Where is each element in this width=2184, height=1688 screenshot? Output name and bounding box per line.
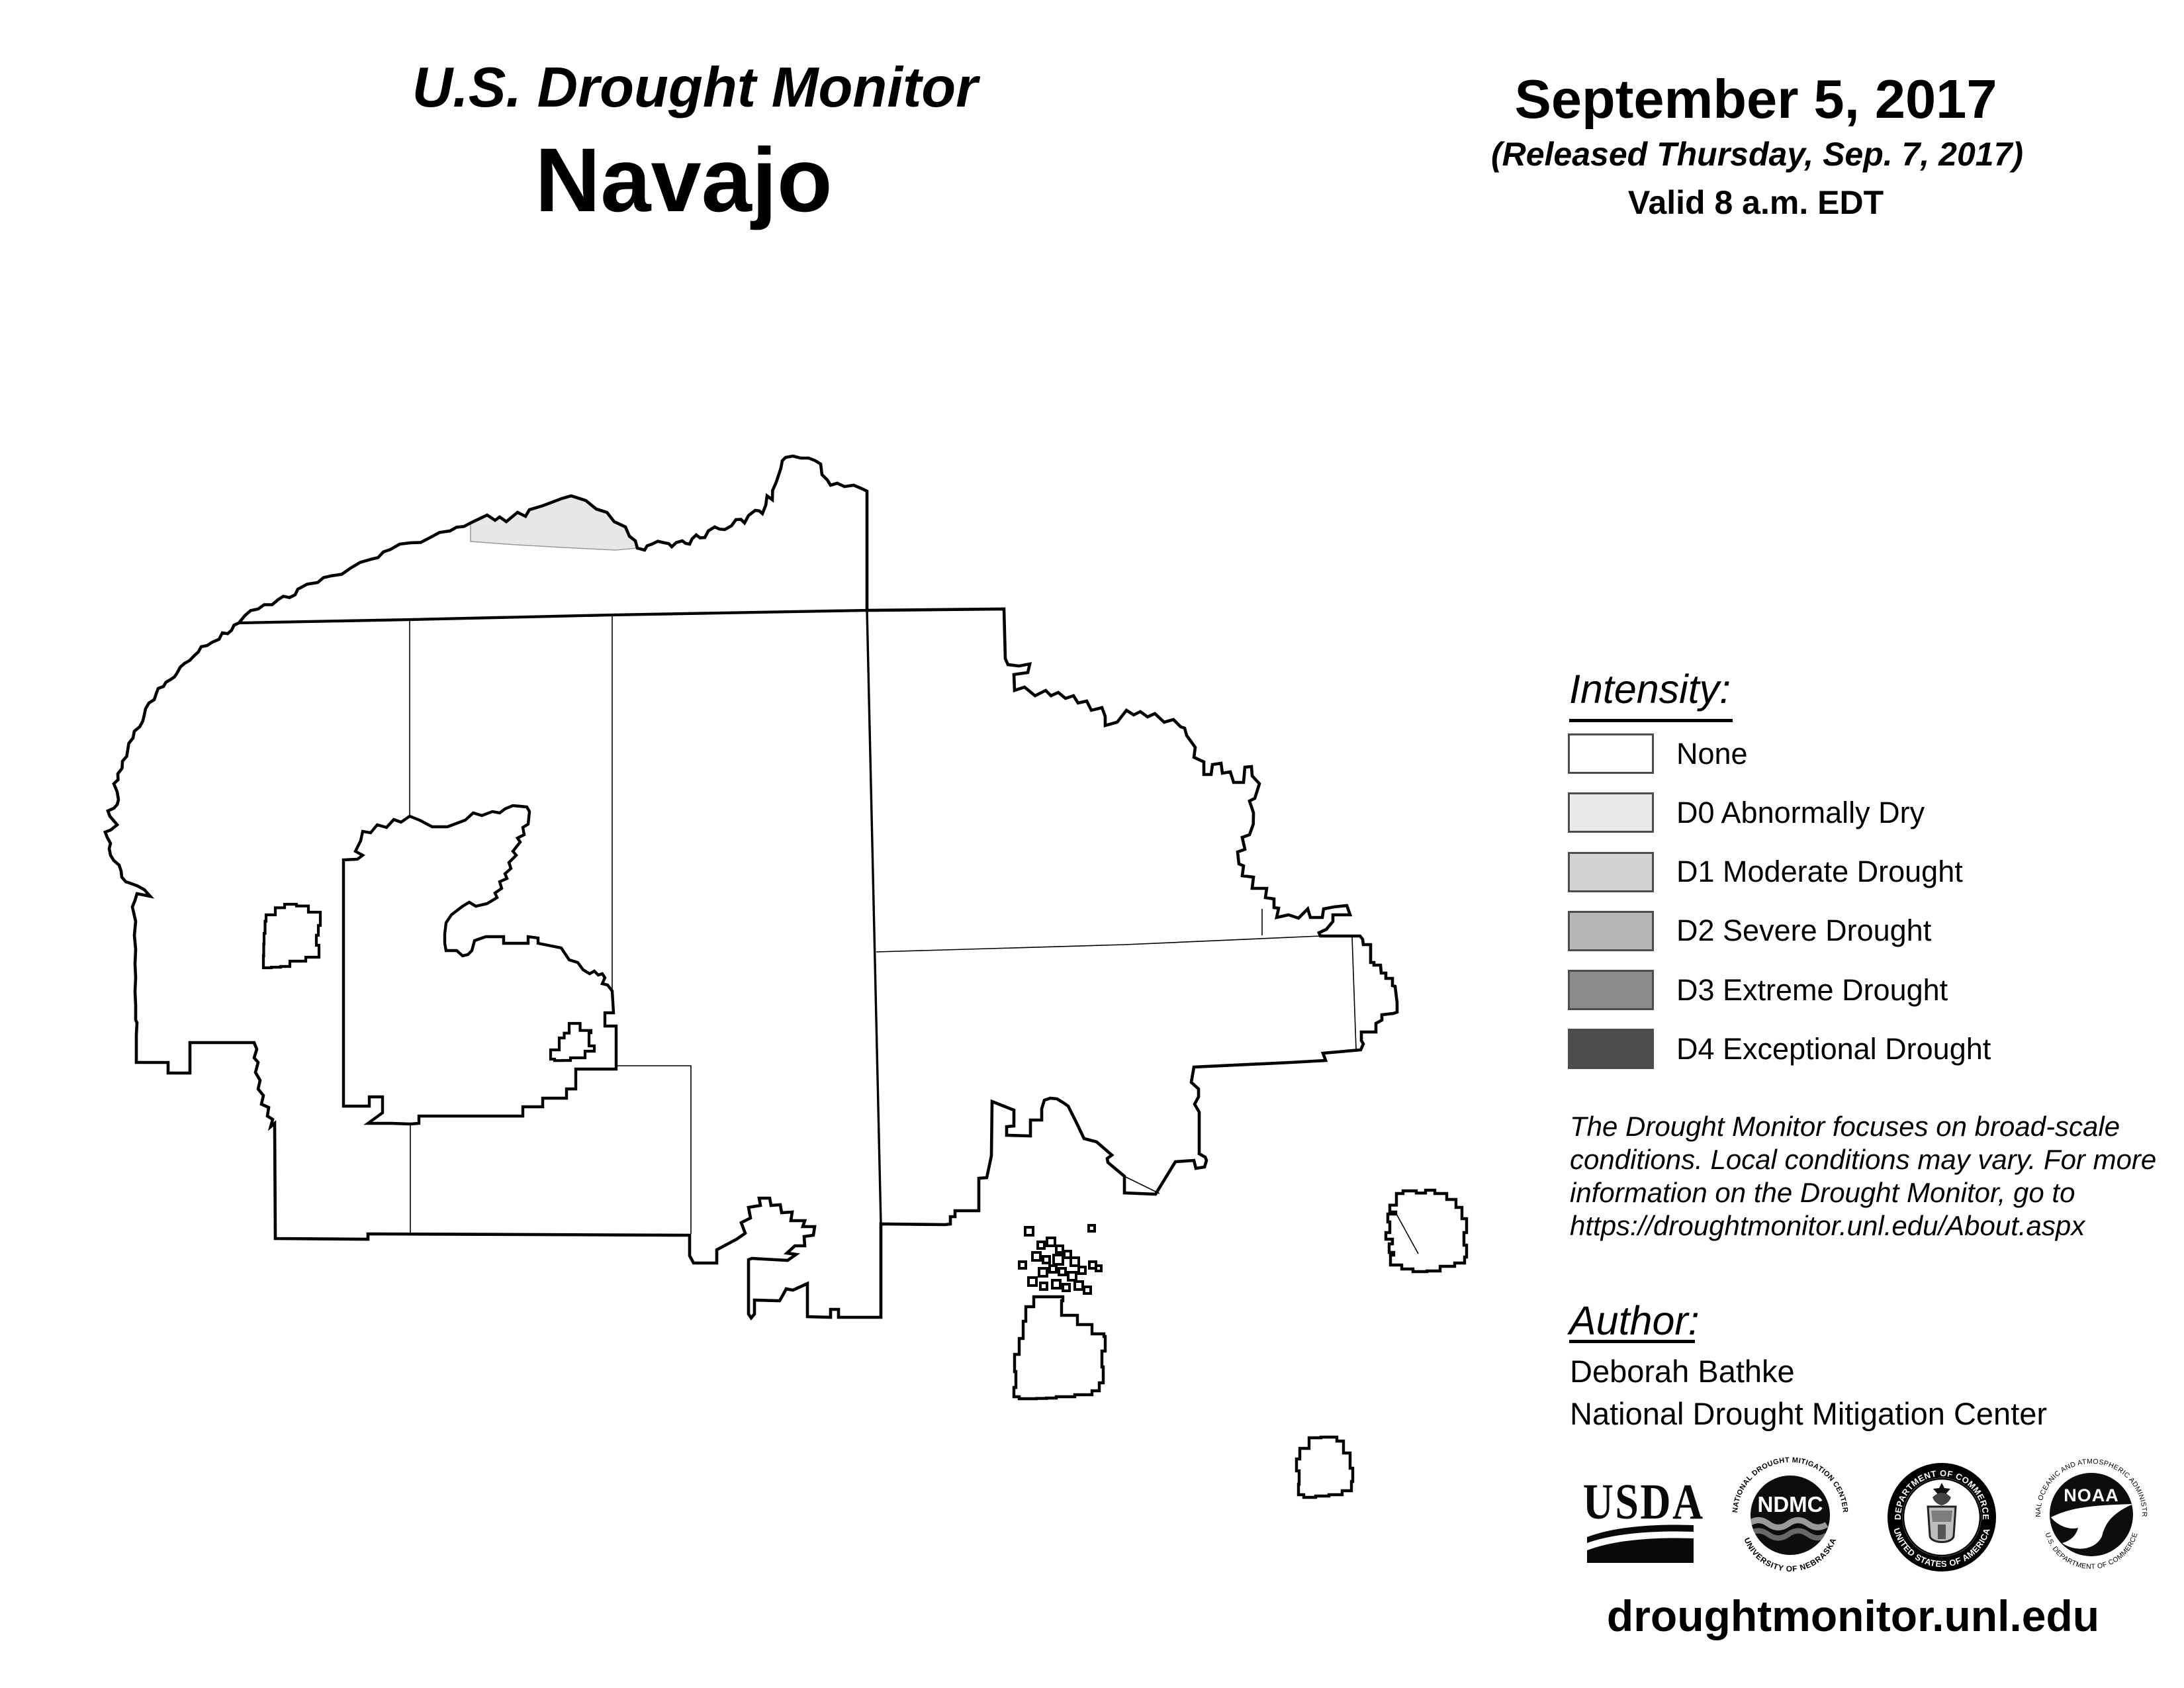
svg-text:NDMC: NDMC [1758,1492,1823,1517]
svg-text:USDA: USDA [1583,1474,1705,1530]
svg-text:NOAA: NOAA [2064,1485,2119,1505]
